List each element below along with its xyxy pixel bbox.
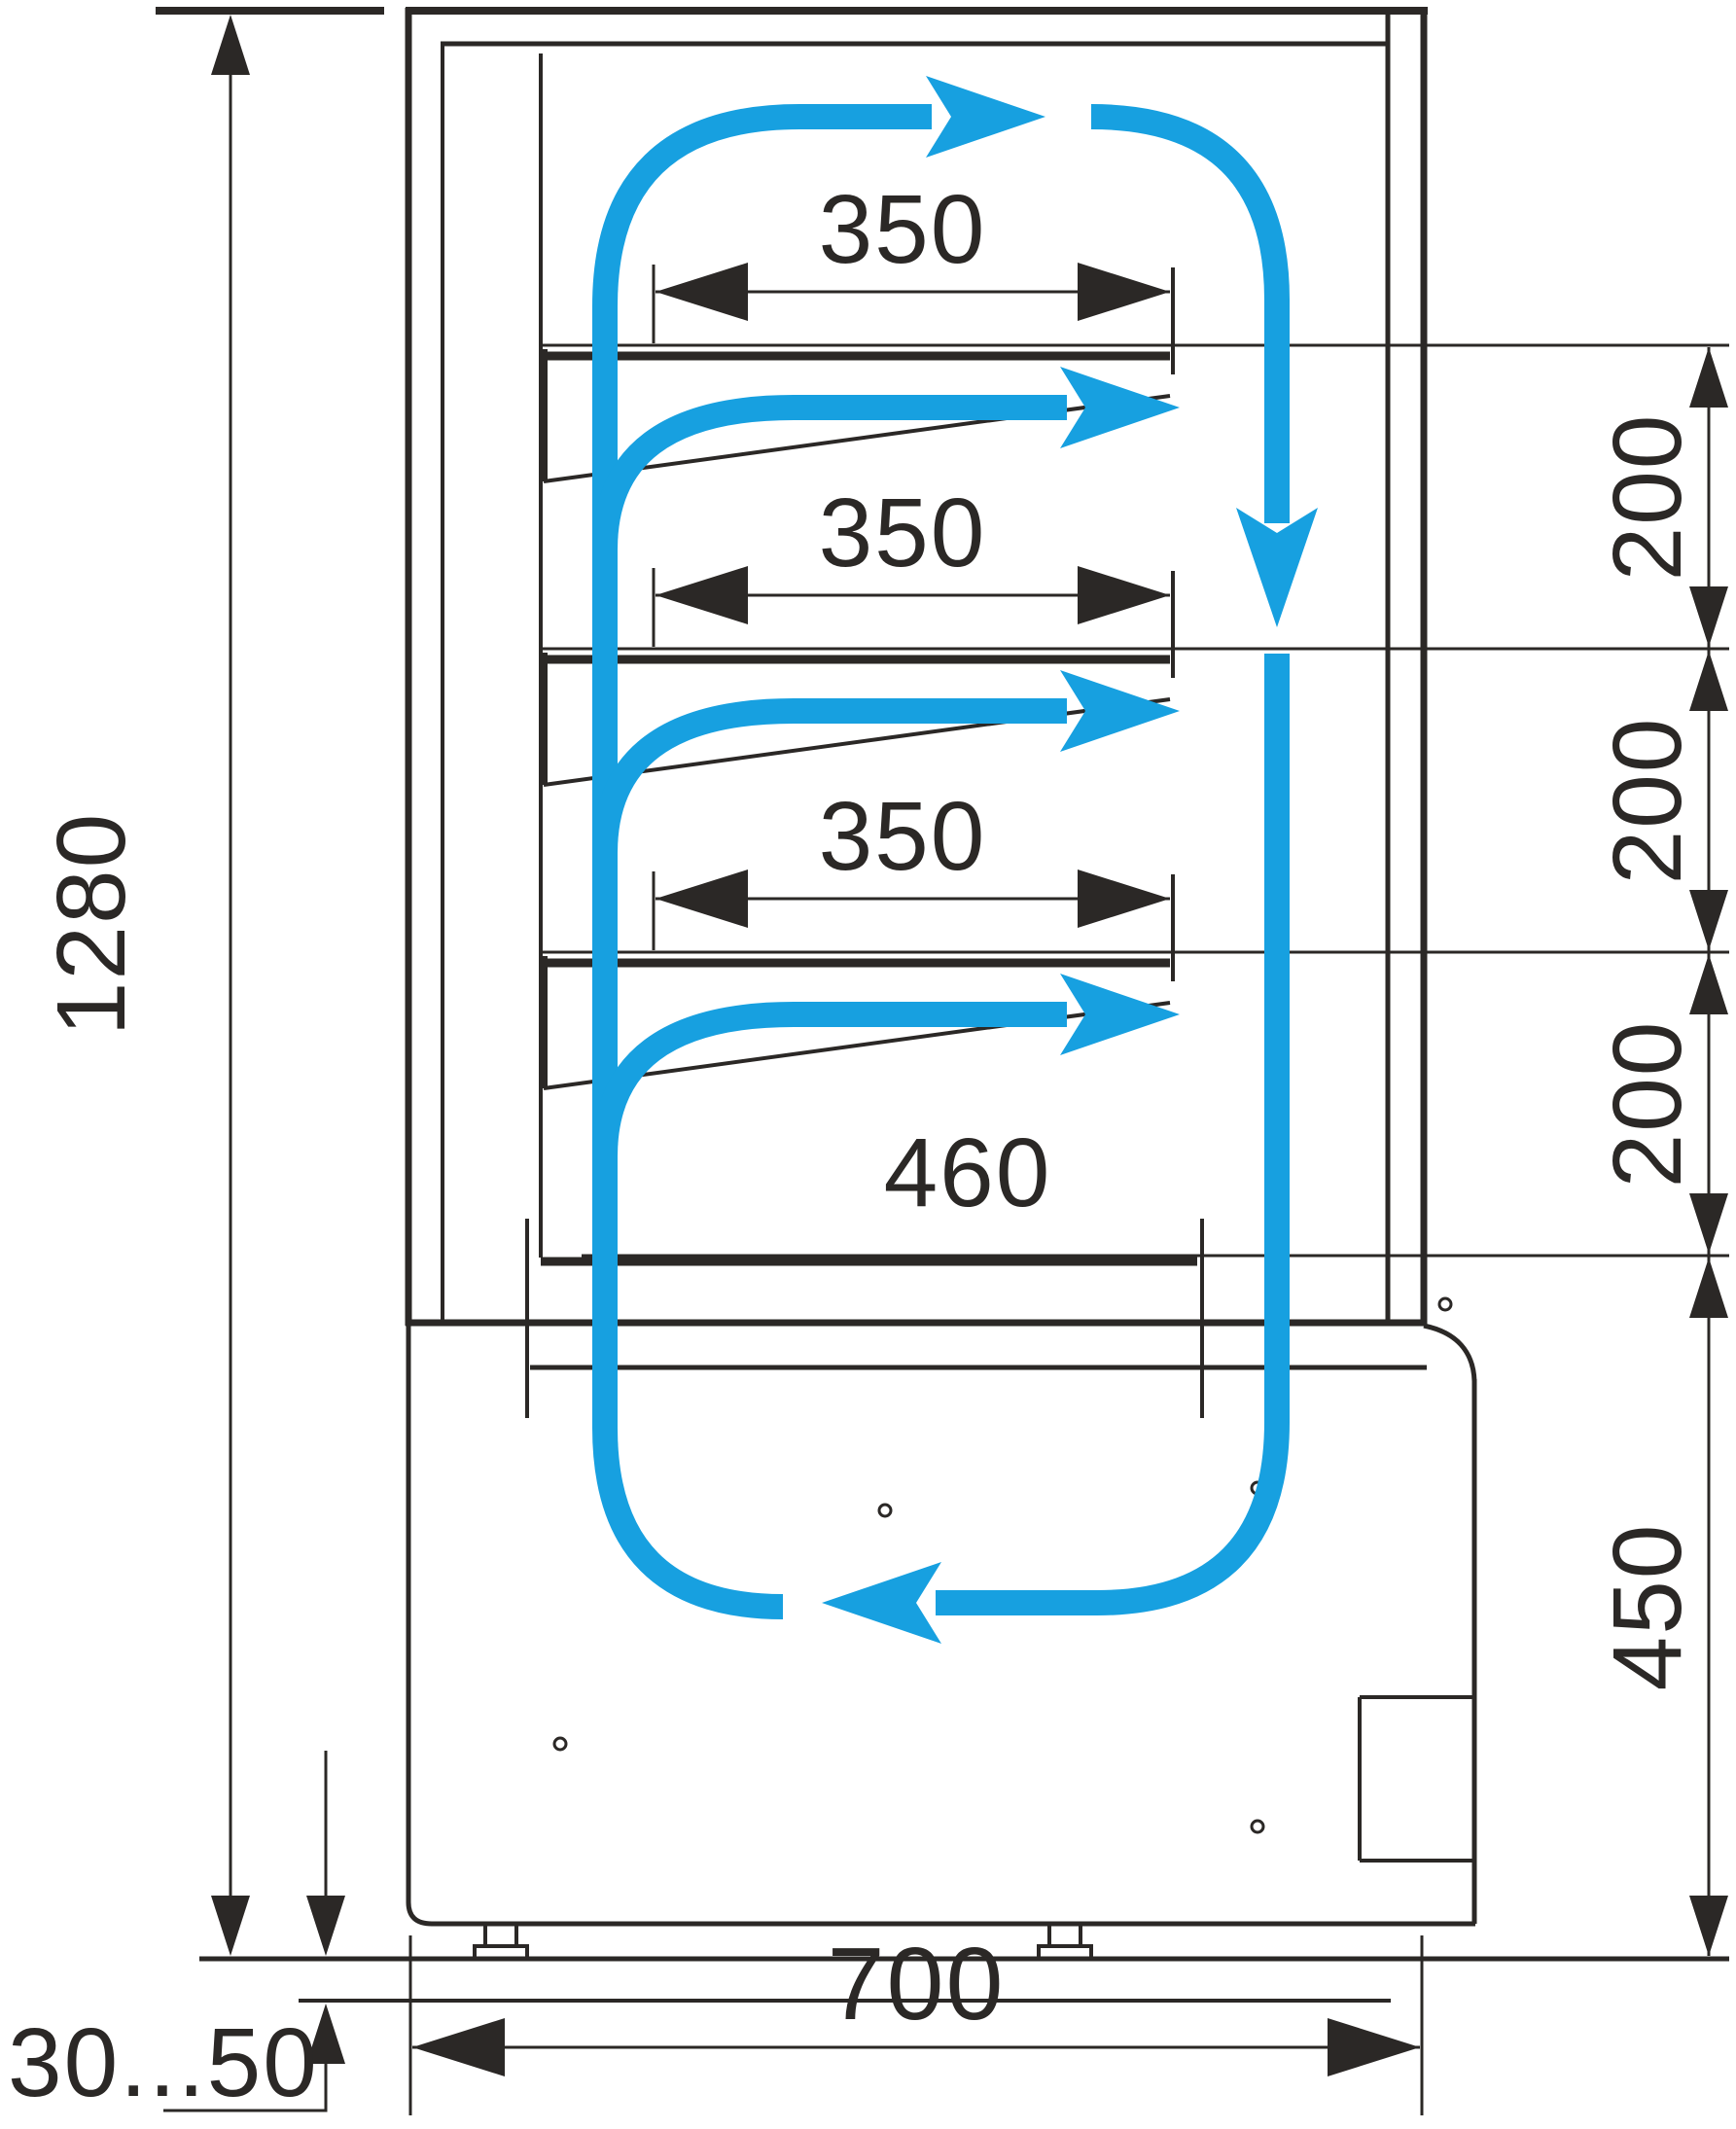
- drawing-canvas: 350 350 350 460 1280 200 200 200 450 700…: [0, 0, 1736, 2129]
- dim-450-bottom-arrow: [1689, 1896, 1728, 1956]
- base-left-and-bottom: [408, 1323, 1475, 1924]
- dim-450-top-arrow: [1689, 1258, 1728, 1318]
- bottom-return-arrowhead: [822, 1562, 941, 1644]
- leg-stem: [1049, 1924, 1081, 1946]
- shelf-gap-1-label: 200: [1593, 413, 1702, 582]
- shelves: [527, 345, 1729, 1418]
- top-discharge-arrowhead: [926, 76, 1045, 158]
- shelf-gap-2-label: 200: [1593, 717, 1702, 885]
- arrowhead-right: [1078, 566, 1170, 624]
- arrowhead-right: [1328, 2018, 1420, 2076]
- dimension-labels: 350 350 350 460 1280 200 200 200 450 700…: [8, 175, 1702, 2117]
- arrowhead-left: [655, 869, 748, 928]
- shelf-depth-3-label: 350: [819, 782, 987, 891]
- bottom-shelf-depth-label: 460: [884, 1118, 1052, 1227]
- leg-left: [475, 1924, 527, 1959]
- overall-depth-label: 700: [828, 1927, 1006, 2041]
- shelf-depth-1-label: 350: [819, 175, 987, 284]
- technical-drawing: 350 350 350 460 1280 200 200 200 450 700…: [0, 0, 1736, 2129]
- overall-height-label: 1280: [37, 812, 146, 1036]
- machine-base: [199, 1298, 1729, 2001]
- leg-adjustment-label: 30...50: [8, 2008, 319, 2117]
- front-glass-curve-line: [1091, 117, 1277, 523]
- screw-mark: [879, 1505, 891, 1516]
- arrowhead-down: [211, 1896, 250, 1956]
- base-front-step-curve: [1424, 1326, 1474, 1381]
- arrowhead-left: [655, 263, 748, 321]
- screw-mark: [1252, 1821, 1263, 1832]
- case-outline: [156, 8, 1428, 1367]
- arrowhead-down: [306, 1896, 345, 1956]
- shelf-depth-2-label: 350: [819, 479, 987, 587]
- arrowhead-left: [412, 2018, 505, 2076]
- dim-overall-height: [211, 15, 250, 1956]
- arrowhead-right: [1078, 869, 1170, 928]
- leg-stem: [485, 1924, 516, 1946]
- leg-right: [1039, 1924, 1091, 1959]
- bottom-deck: [527, 1219, 1729, 1418]
- arrowhead-left: [655, 566, 748, 624]
- front-downflow-arrowhead: [1236, 508, 1318, 627]
- screw-mark: [1439, 1298, 1451, 1310]
- base-height-label: 450: [1593, 1523, 1702, 1691]
- arrowhead-right: [1078, 263, 1170, 321]
- screw-mark: [554, 1738, 566, 1750]
- dimensions: [163, 15, 1728, 2115]
- arrowhead-up: [211, 15, 250, 75]
- shelf-gap-3-label: 200: [1593, 1020, 1702, 1189]
